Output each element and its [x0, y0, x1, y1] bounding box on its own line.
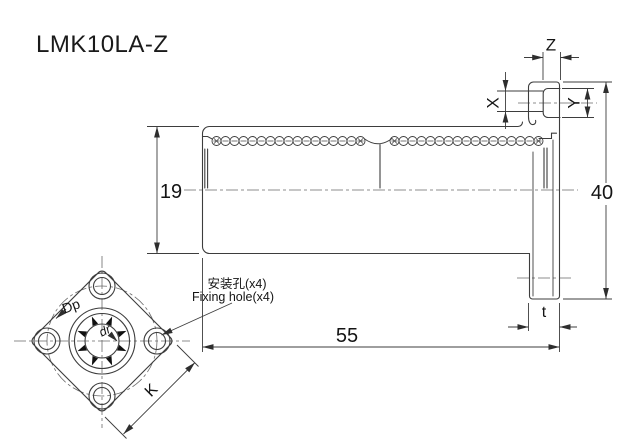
dim-55-lines — [203, 258, 560, 352]
centerlines — [14, 103, 597, 428]
left-seal-detail — [203, 137, 213, 140]
left-retainer-lines — [205, 149, 208, 188]
arrowhead — [561, 55, 572, 61]
fixing-hole-leader — [162, 303, 233, 335]
dim-label-y: Y — [566, 97, 583, 108]
dim-label-z: Z — [546, 37, 556, 54]
arrowhead — [518, 324, 529, 330]
drawing-canvas: LMK10LA-Z 19 55 40 t Z X Y K Dp dr 安装孔(x… — [0, 0, 640, 440]
arrowhead — [503, 80, 509, 91]
dim-label-t: t — [542, 305, 546, 321]
body-left-bottom-edge — [203, 134, 530, 254]
arrowhead — [603, 82, 609, 93]
flange-outline — [530, 82, 560, 299]
arrowhead — [560, 324, 571, 330]
arrowhead — [154, 127, 160, 138]
side-view-outline — [203, 82, 561, 299]
arrowhead — [603, 288, 609, 299]
right-retainer-lines — [544, 148, 547, 188]
part-number-title: LMK10LA-Z — [36, 31, 169, 59]
arrowhead — [203, 344, 214, 350]
arrowhead — [585, 89, 591, 100]
technical-drawing-svg — [0, 0, 640, 440]
flange-inner-lines — [533, 140, 553, 296]
arrowhead — [532, 55, 543, 61]
dim-label-19: 19 — [160, 182, 182, 202]
note-fixing-hole-en: Fixing hole(x4) — [192, 291, 274, 304]
arrowhead — [585, 107, 591, 118]
dim-label-55: 55 — [336, 326, 358, 346]
dim-label-40: 40 — [589, 183, 615, 203]
body-top-edge — [203, 122, 523, 134]
ball-track-transition — [364, 139, 392, 144]
arrowhead — [503, 112, 509, 123]
arrowhead — [154, 243, 160, 254]
dim-label-x: X — [485, 97, 502, 108]
arrowhead — [162, 328, 173, 335]
arrowhead — [549, 344, 560, 350]
note-fixing-hole-cn: 安装孔(x4) — [207, 278, 266, 291]
